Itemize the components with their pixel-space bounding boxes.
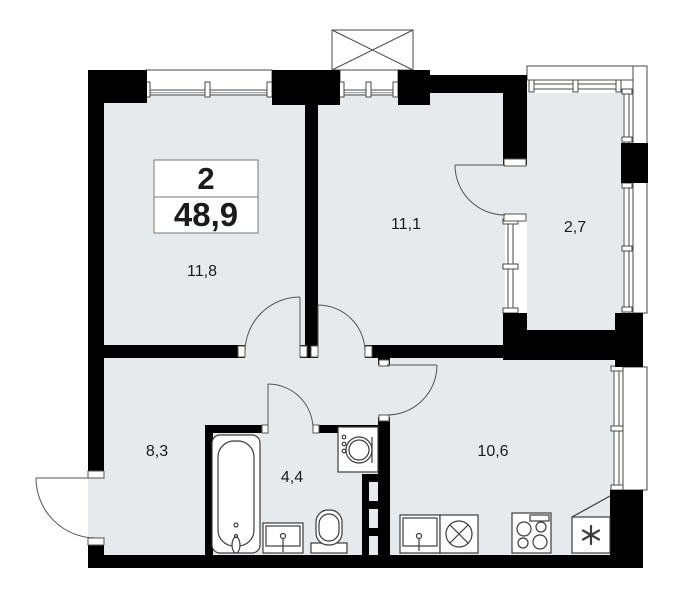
balcony-outer-wall-top [527,66,647,80]
wall-bottom [88,555,643,568]
ventilation-shaft-icon [332,30,413,70]
balcony-door-opening-floor [503,165,527,221]
kitchen-window-outer-band [623,367,647,490]
wall-top-left-pier [88,70,147,103]
stove-icon [512,513,551,553]
bathroom-sink-icon [263,523,303,553]
floorplan-canvas: 2 48,9 11,8 11,1 2,7 8,3 4,4 10,6 [0,0,679,600]
wall-living-bottom [88,345,245,358]
bathroom-area-label: 4,4 [281,469,303,486]
entrance-opening-floor [88,478,104,538]
wall-balcony-right-block [621,143,648,183]
wall-kitchen-top [365,345,623,358]
balcony-floor [527,93,623,330]
title-box: 2 48,9 [154,160,258,233]
wall-bedroom-balcony-upper [503,75,527,165]
wall-between-rooms [305,93,318,345]
kitchen-area-label: 10,6 [477,443,508,460]
washing-machine-icon [338,427,378,472]
bathtub-icon [212,435,260,553]
wall-bathroom-top-left [205,425,268,433]
balcony-area-label: 2,7 [564,219,586,236]
wall-balcony-kitchen-corner [615,313,643,367]
floorplan-svg: 2 48,9 11,8 11,1 2,7 8,3 4,4 10,6 [0,0,679,600]
wall-left-upper [88,103,104,478]
bedroom-area-label: 11,1 [391,216,421,233]
kitchen-sink-icon [400,515,440,553]
total-area-label: 48,9 [174,196,238,233]
dishwasher-icon [440,515,478,553]
rooms-count-label: 2 [197,161,214,196]
wall-kitchen-bottom-right-corner [610,490,643,557]
living-room-area-label: 11,8 [187,263,217,280]
balcony-outer-wall-right [633,66,647,313]
hallway-area-label: 8,3 [146,443,168,460]
